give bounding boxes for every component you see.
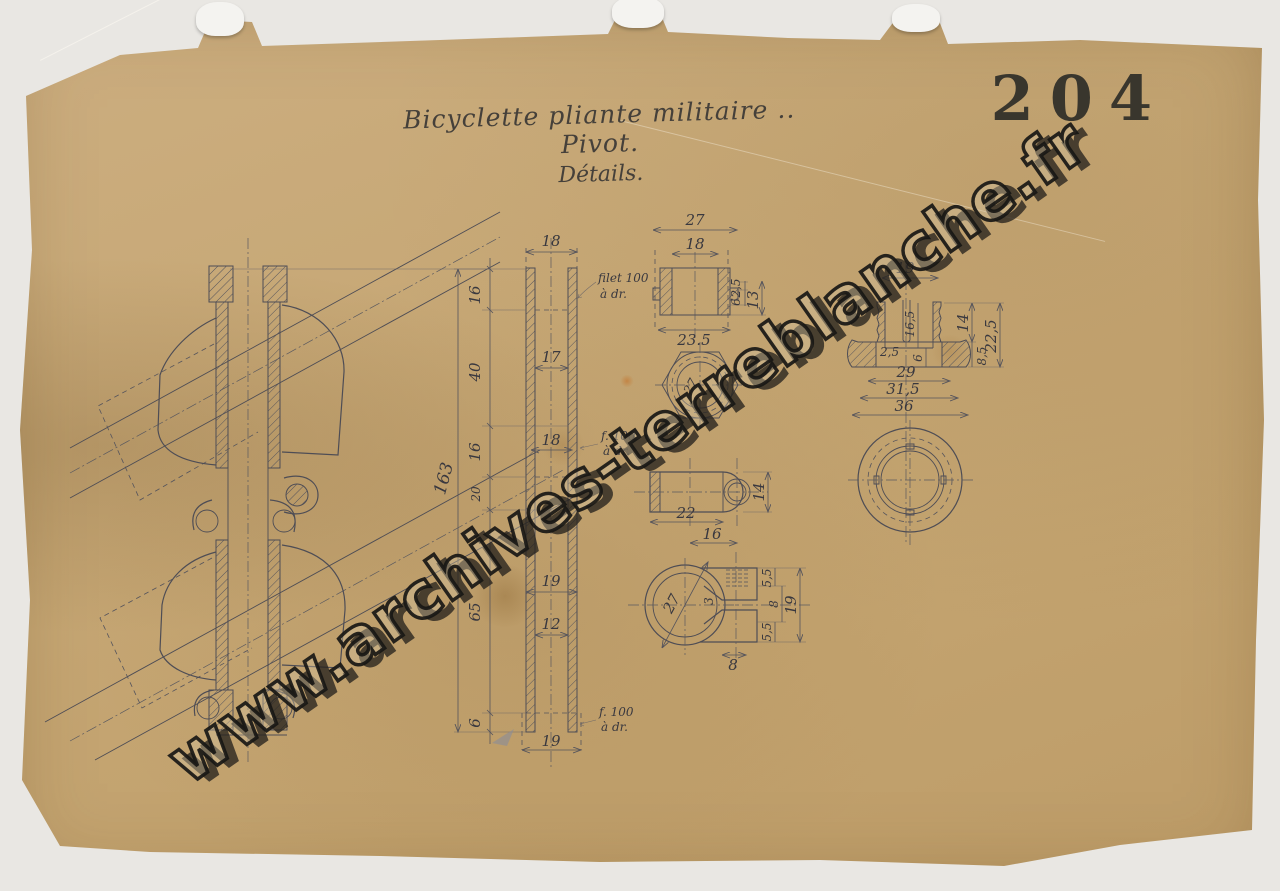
ball-bearing (196, 510, 218, 532)
leader-line (578, 282, 596, 298)
view-cap-plan (848, 420, 975, 545)
view-hexnut-plan: 27 (655, 342, 745, 428)
thread-note: à dr. (601, 720, 628, 734)
title-line-1: Bicyclette pliante militaire .. Pivot. (369, 94, 830, 165)
thread-note: à dr. (600, 287, 627, 301)
thread-note: à dr. (603, 444, 630, 458)
thread-note: f. 100 (598, 705, 634, 719)
dim-label: 18 (541, 232, 560, 250)
lug-centerlines (634, 458, 768, 526)
dim-label: 8 (767, 600, 781, 608)
removed-tube-outline-lower (100, 558, 252, 708)
view-pivot-assembly-section (45, 212, 590, 764)
dim-label: 16 (702, 525, 722, 543)
tube-wall-upper-left (216, 302, 228, 468)
view-pivot-tube-section: 16 40 16 20 65 6 163 18 17 18 19 12 19 f… (430, 232, 649, 770)
dim-label: 65 (466, 602, 484, 621)
dim-label: 16 (466, 442, 484, 462)
dim-label: 19 (782, 595, 800, 615)
dim-label: 22 (675, 504, 695, 522)
hex-centerlines (655, 342, 745, 428)
dim-label: 14 (750, 482, 768, 501)
dim-label: 6 (911, 354, 925, 362)
tube-wall-lower-left (216, 540, 228, 690)
cap-flange-right (942, 340, 971, 367)
tube-wall-upper-right (268, 302, 280, 468)
dim-label: 16,5 (903, 311, 917, 338)
archive-number-stamp: 204 (991, 62, 1168, 135)
lug-flare-upper-left (158, 318, 216, 465)
dim-label: 19 (895, 259, 915, 277)
dim-label: 22,5 (982, 319, 1000, 353)
bushing-flange-left (653, 288, 660, 300)
dim-label: 6 (729, 298, 743, 306)
tube-collar-top-right (263, 266, 287, 302)
pencil-mark (492, 729, 514, 746)
cap-stem-right (933, 302, 941, 342)
dim-label: 18 (541, 431, 560, 449)
dim-label: 3 (702, 597, 716, 605)
dim-label: 13 (744, 290, 762, 309)
dim-label: 19 (541, 732, 561, 750)
dim-label: 8 (728, 656, 738, 674)
thread-note: f. 100 (600, 429, 636, 443)
view-eye-lug: 22 16 14 (634, 458, 772, 543)
dim-label: 16 (466, 285, 484, 305)
dim-label: 18 (685, 235, 704, 253)
thread-note: filet 100 (597, 271, 649, 285)
tube-collar-bottom-right (263, 690, 287, 730)
dim-label: 29 (895, 363, 916, 381)
frame-tube-upper (70, 212, 500, 498)
leader-line (580, 444, 598, 450)
lug-flare-upper-right (282, 305, 344, 455)
dim-label: 17 (541, 348, 561, 366)
dim-label: 27 (680, 376, 700, 397)
dim-label: 14 (954, 313, 972, 332)
dim-label: 27 (684, 211, 705, 229)
dim-label: 36 (894, 397, 914, 415)
dim-label: 12 (541, 615, 560, 633)
dim-label: 20 (469, 486, 483, 503)
cap-flange-left (848, 340, 877, 367)
bushing-wall-left (660, 268, 672, 315)
dim-label: 163 (430, 460, 458, 497)
dim-label: 5,5 (760, 622, 774, 641)
column-wall-right (568, 268, 577, 732)
view-bushing-section: 27 18 23.5 2,5 6 13 (653, 211, 766, 349)
view-clamp-ring: 27 3 5,5 8 5,5 19 8 (628, 552, 812, 674)
dim-label: 19 (541, 572, 561, 590)
column-wall-left (526, 268, 535, 732)
bearing-race (193, 500, 295, 532)
clamp-bolt-section (286, 484, 308, 506)
tube-wall-lower-right (268, 540, 280, 690)
dim-label: 2,5 (729, 278, 743, 298)
dim-label: 23.5 (676, 331, 710, 349)
dim-label: 40 (466, 362, 484, 383)
dim-label: 5,5 (760, 568, 774, 587)
view-cap-section: 19 16,5 6 2,5 29 31,5 36 14 8,5 22,5 (848, 259, 1005, 545)
tube-collar-top-left (209, 266, 233, 302)
cap-stem-left (877, 302, 885, 342)
lug-flare-lower-right (282, 545, 345, 668)
cap-plan-centerlines (848, 420, 975, 545)
removed-tube-outline-upper (98, 344, 258, 500)
dim-label: 31,5 (886, 380, 919, 398)
dim-label: 6 (466, 718, 484, 728)
scanned-drawing-sheet: 16 40 16 20 65 6 163 18 17 18 19 12 19 f… (0, 0, 1280, 891)
dim-label: 2,5 (879, 345, 899, 359)
drawing-title: Bicyclette pliante militaire .. Pivot. D… (369, 94, 831, 194)
tube-collar-bottom-left (209, 690, 233, 730)
leader-line (580, 720, 596, 726)
